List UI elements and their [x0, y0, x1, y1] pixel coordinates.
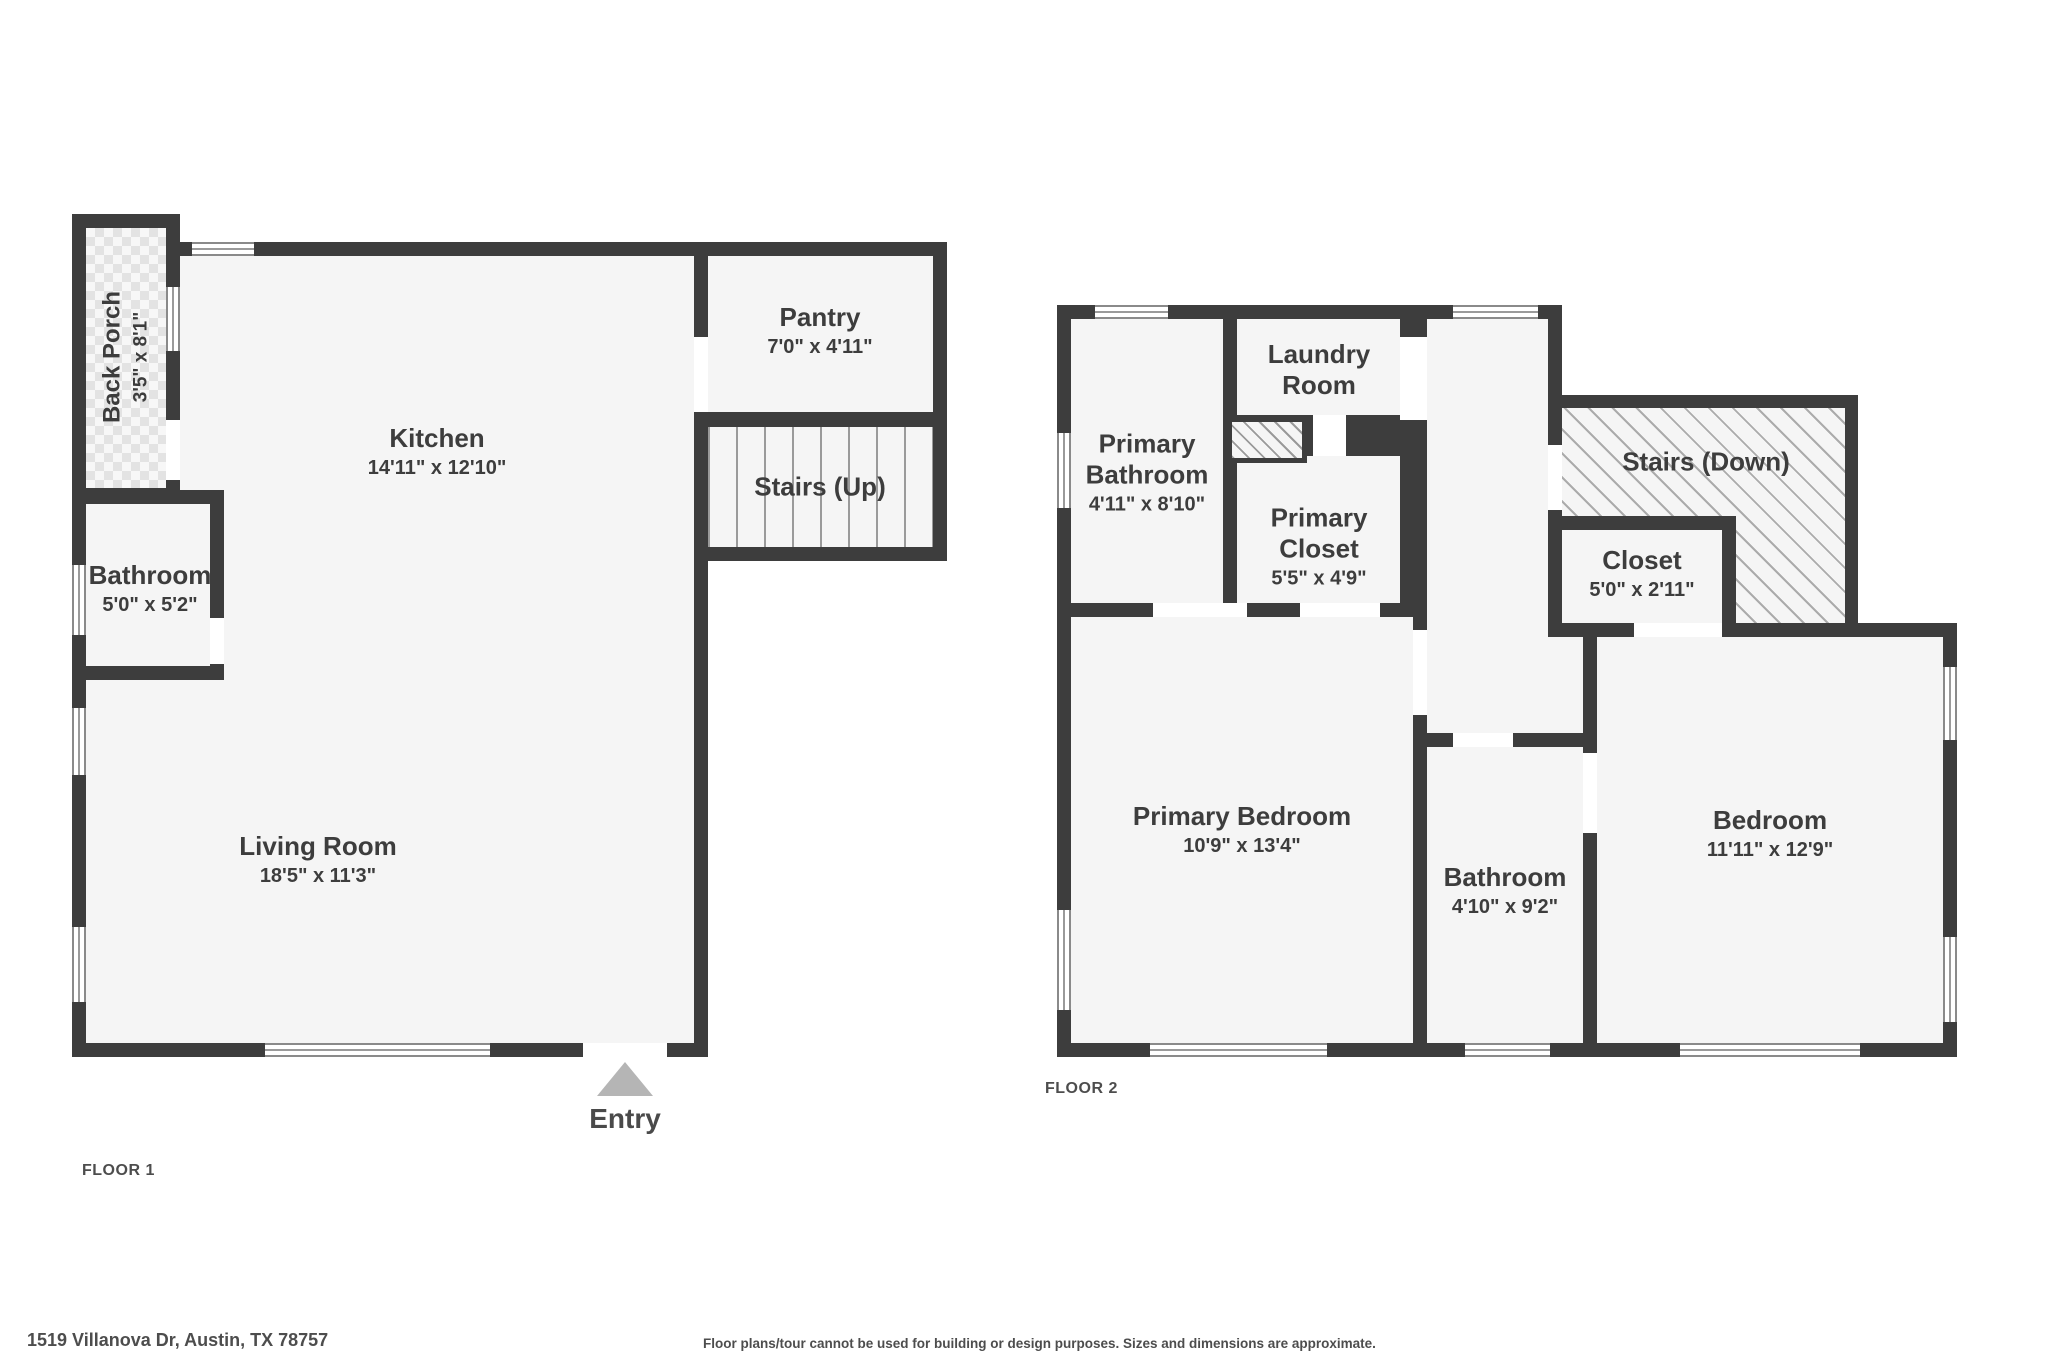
stairs-down-name: Stairs (Down) [1622, 446, 1790, 477]
kitchen-label: Kitchen 14'11" x 12'10" [368, 423, 507, 481]
living-bottom-window [265, 1043, 490, 1057]
porch-kitchen-window [166, 287, 180, 351]
porch-kitchen-door [166, 420, 180, 480]
back-porch-dims: 3'5" x 8'1" [130, 291, 154, 423]
hall-lower-area [1427, 637, 1583, 733]
bedroom-label: Bedroom 11'11" x 12'9" [1707, 805, 1833, 863]
bedroom-right-window-1 [1943, 667, 1957, 740]
living-room-name: Living Room [239, 831, 396, 862]
laundry-room-label: Laundry Room [1254, 339, 1384, 401]
living-left-window-2 [72, 927, 86, 1002]
primary-bathroom-door [1153, 603, 1247, 617]
bathroom2-dims: 4'10" x 9'2" [1444, 895, 1567, 920]
primary-bedroom-dims: 10'9" x 13'4" [1133, 834, 1351, 859]
floorplan-canvas: Back Porch 3'5" x 8'1" Kitchen 14'11" x … [0, 0, 2048, 1365]
hall-upper-area [1427, 319, 1548, 637]
back-porch-label: Back Porch 3'5" x 8'1" [99, 291, 154, 423]
bathroom-dims: 5'0" x 5'2" [89, 593, 212, 618]
disclaimer-text: Floor plans/tour cannot be used for buil… [703, 1336, 1376, 1351]
stairs-down-label: Stairs (Down) [1622, 446, 1790, 477]
primary-bedroom-name: Primary Bedroom [1133, 801, 1351, 832]
bedroom-door [1583, 753, 1597, 833]
entry-arrow-icon [597, 1062, 653, 1096]
primary-bedroom-bottom-window [1150, 1043, 1327, 1057]
closet-bedroom-door [1634, 623, 1722, 637]
primary-bedroom-door [1413, 630, 1427, 715]
living-left-window-1 [72, 708, 86, 775]
closet-label: Closet 5'0" x 2'11" [1589, 545, 1694, 603]
pantry-dims: 7'0" x 4'11" [767, 335, 872, 360]
bathroom-left-window [72, 565, 86, 635]
laundry-room-name: Laundry Room [1254, 339, 1384, 401]
pantry-name: Pantry [767, 302, 872, 333]
pantry-label: Pantry 7'0" x 4'11" [767, 302, 872, 360]
living-room-label: Living Room 18'5" x 11'3" [239, 831, 396, 889]
bathroom-name: Bathroom [89, 560, 212, 591]
primary-bathroom-top-window [1095, 305, 1168, 319]
primary-bedroom-label: Primary Bedroom 10'9" x 13'4" [1133, 801, 1351, 859]
stairs-up-name: Stairs (Up) [754, 471, 885, 502]
bedroom-name: Bedroom [1707, 805, 1833, 836]
bedroom-right-window-2 [1943, 937, 1957, 1022]
bedroom-dims: 11'11" x 12'9" [1707, 838, 1833, 863]
hall-top-window [1453, 305, 1538, 319]
stairs-down-door [1548, 445, 1562, 510]
floor1-tag: FLOOR 1 [82, 1162, 155, 1180]
kitchen-pantry-door [694, 337, 708, 412]
primary-closet-label: Primary Closet 5'5" x 4'9" [1254, 502, 1384, 591]
laundry-hall-door [1400, 337, 1427, 420]
primary-closet-dims: 5'5" x 4'9" [1254, 567, 1384, 592]
laundry-closet-opening [1313, 415, 1346, 456]
bathroom-label: Bathroom 5'0" x 5'2" [89, 560, 212, 618]
bathroom2-name: Bathroom [1444, 862, 1567, 893]
bathroom2-bottom-window [1465, 1043, 1550, 1057]
entry-label: Entry [589, 1103, 661, 1135]
primary-closet-name: Primary Closet [1254, 502, 1384, 564]
closet-name: Closet [1589, 545, 1694, 576]
back-porch-name: Back Porch [99, 291, 128, 423]
closet-dims: 5'0" x 2'11" [1589, 578, 1694, 603]
address-text: 1519 Villanova Dr, Austin, TX 78757 [27, 1330, 328, 1351]
kitchen-top-window [192, 242, 254, 256]
living-room-dims: 18'5" x 11'3" [239, 864, 396, 889]
primary-bathroom-dims: 4'11" x 8'10" [1067, 493, 1227, 518]
primary-closet-door [1300, 603, 1380, 617]
bathroom2-label: Bathroom 4'10" x 9'2" [1444, 862, 1567, 920]
laundry-appliance-box [1227, 417, 1307, 463]
kitchen-name: Kitchen [368, 423, 507, 454]
stairs-up-label: Stairs (Up) [754, 471, 885, 502]
primary-bathroom-name: Primary Bathroom [1067, 428, 1227, 490]
primary-bathroom-label: Primary Bathroom 4'11" x 8'10" [1067, 428, 1227, 517]
kitchen-dims: 14'11" x 12'10" [368, 456, 507, 481]
floor2-tag: FLOOR 2 [1045, 1080, 1118, 1098]
entry-door-opening [583, 1043, 667, 1057]
bathroom-door [210, 618, 224, 664]
primary-bedroom-left-window [1057, 910, 1071, 1010]
bathroom2-door [1453, 733, 1513, 747]
bedroom-bottom-window [1680, 1043, 1860, 1057]
